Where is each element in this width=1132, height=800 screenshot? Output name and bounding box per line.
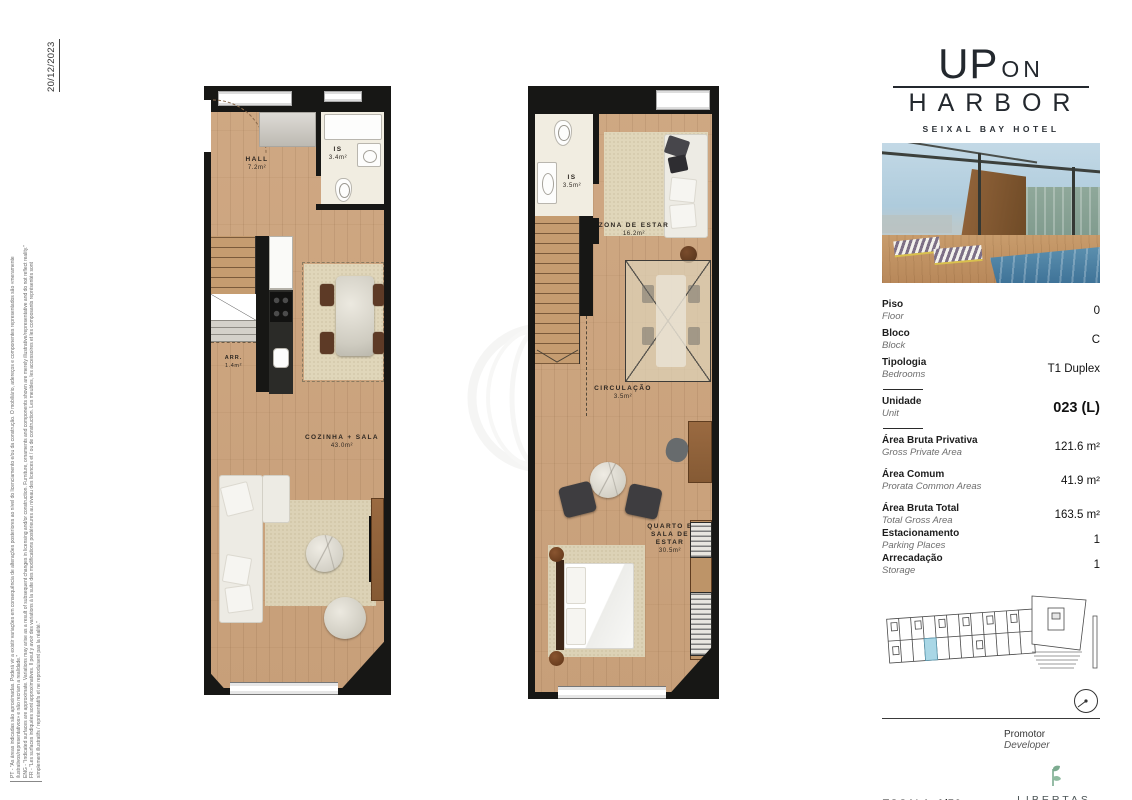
staircase [535, 216, 580, 364]
wall [580, 216, 593, 316]
brand-harbor: HARBOR [893, 86, 1089, 118]
value-gross-private: 121.6 m² [1055, 441, 1100, 453]
label-en: Floor [882, 311, 904, 322]
nightstand [549, 651, 564, 666]
armchair [624, 483, 663, 520]
room-label-hall: HALL 7.2m² [222, 156, 292, 171]
room-area: 43.0m² [296, 443, 388, 449]
value-parking: 1 [1094, 534, 1100, 546]
pouf [324, 597, 366, 639]
project-photo [882, 143, 1100, 283]
promoter-label-en: Developer [1004, 740, 1100, 751]
room-name: IS [318, 146, 358, 154]
promoter-label-pt: Promotor [1004, 729, 1100, 740]
room-area: 30.5m² [636, 548, 704, 554]
developer-name: LIBERTAS [1008, 794, 1100, 800]
floorplan-level1: IS 3.5m² ZONA DE ESTAR 16.2m² CIRCULAÇÃO… [528, 86, 719, 699]
ghost-chair [642, 327, 654, 345]
developer-logo: LIBERTAS GRUPO IMOBILIÁRIO [1008, 765, 1100, 800]
room-area: 3.5m² [554, 183, 590, 189]
dining-chair [320, 284, 334, 306]
room-label-arr: ARR. 1.4m² [211, 354, 256, 369]
label-en: Block [882, 340, 910, 351]
wall [384, 86, 391, 695]
sofa-chaise [262, 475, 290, 523]
label-pt: Arrecadação [882, 553, 943, 565]
wall [712, 86, 719, 699]
label-pt: Estacionamento [882, 528, 959, 540]
promoter-block: Promotor Developer [1004, 729, 1100, 751]
stair-arrow-icon [535, 348, 580, 366]
room-area: 16.2m² [596, 231, 672, 237]
nightstand [549, 547, 564, 562]
value-block: C [1092, 334, 1100, 346]
window [230, 682, 338, 695]
label-pt: Área Comum [882, 469, 981, 481]
photo-pergola-post [978, 153, 981, 245]
label-pt: Área Bruta Privativa [882, 435, 978, 447]
dining-chair [373, 284, 384, 306]
value-unit: 023 (L) [1053, 400, 1100, 416]
room-label-quarto: QUARTO E SALA DE ESTAR 30.5m² [636, 523, 704, 554]
brand-up: UP [938, 44, 998, 84]
room-name: COZINHA + SALA [296, 434, 388, 442]
room-label-is: IS 3.4m² [318, 146, 358, 161]
brand-subtitle: SEIXAL BAY HOTEL [882, 124, 1100, 134]
headboard [556, 560, 564, 650]
coffee-table [306, 535, 343, 572]
wall [204, 86, 211, 695]
wardrobe-hanging [690, 592, 712, 656]
washing-machine [357, 143, 381, 167]
room-name: HALL [222, 156, 292, 164]
ghost-chair [688, 327, 700, 345]
divider [883, 389, 923, 390]
label-pt: Área Bruta Total [882, 503, 959, 515]
detail-row-gross-total: Área Bruta Total Total Gross Area 163.5 … [882, 503, 1100, 526]
wall [316, 204, 384, 210]
value-floor: 0 [1094, 305, 1100, 317]
hall-closet [259, 112, 316, 147]
desk-chair [663, 436, 690, 465]
kitchen-cabinets [269, 236, 293, 290]
tv-sideboard [371, 498, 384, 601]
photo-horizon [882, 215, 952, 233]
detail-row-block: Bloco Block C [882, 328, 1100, 351]
stair-landing [211, 294, 256, 320]
value-gross-total: 163.5 m² [1055, 509, 1100, 521]
value-common: 41.9 m² [1061, 475, 1100, 487]
detail-row-gross-private: Área Bruta Privativa Gross Private Area … [882, 435, 1100, 458]
tv [369, 516, 371, 582]
brand-on: ON [1001, 54, 1044, 84]
ghost-dining-table [656, 275, 686, 367]
label-en: Prorata Common Areas [882, 481, 981, 492]
info-panel: UP ON HARBOR SEIXAL BAY HOTEL Piso Floor… [882, 38, 1100, 800]
wall [593, 114, 599, 184]
room-area: 3.4m² [318, 155, 358, 161]
label-en: Gross Private Area [882, 447, 978, 458]
detail-row-unit: Unidade Unit 023 (L) [882, 396, 1100, 419]
sheet-date: 20/12/2023 [46, 39, 60, 92]
compass-icon [1073, 688, 1099, 714]
stair-lower-steps [211, 320, 256, 342]
room-name: QUARTO E SALA DE ESTAR [636, 523, 704, 547]
detail-row-storage: Arrecadação Storage 1 [882, 553, 1100, 576]
sofa-cushion [222, 554, 252, 586]
room-area: 1.4m² [211, 363, 256, 369]
sofa-cushion [669, 203, 697, 229]
dining-table [336, 276, 374, 356]
label-en: Unit [882, 408, 921, 419]
dining-chair [373, 332, 384, 354]
plan-sheet: { "meta": { "date": "20/12/2023" }, "dis… [0, 0, 1132, 800]
angled-wall [336, 634, 391, 695]
label-en: Bedrooms [882, 369, 926, 380]
value-storage: 1 [1094, 559, 1100, 571]
detail-row-typology: Tipologia Bedrooms T1 Duplex [882, 357, 1100, 380]
divider [882, 718, 1100, 719]
round-table [590, 462, 626, 498]
room-area: 7.2m² [222, 165, 292, 171]
brand-logo: UP ON HARBOR SEIXAL BAY HOTEL [882, 38, 1100, 134]
divider [883, 428, 923, 429]
entrance-door-gap [204, 100, 211, 152]
scale-bar [1093, 616, 1097, 668]
legal-disclaimer: PT - "As áreas indicadas são aproximadas… [10, 76, 42, 782]
disclaimer-line: simplement illustratifs / représentatifs… [36, 76, 42, 778]
detail-row-parking: Estacionamento Parking Places 1 [882, 528, 1100, 551]
ghost-chair [688, 285, 700, 303]
room-name: ZONA DE ESTAR [596, 222, 672, 230]
label-en: Storage [882, 565, 943, 576]
kitchen-sink [273, 348, 289, 368]
room-name: IS [554, 174, 590, 182]
photo-wood-structure [960, 169, 1026, 245]
pillow [566, 567, 586, 604]
ghost-chair [642, 285, 654, 303]
window [656, 90, 710, 110]
double-height-void [625, 260, 711, 382]
room-name: ARR. [211, 354, 256, 362]
label-pt: Tipologia [882, 357, 926, 369]
floorplan-level0: IS 3.4m² HALL 7.2m² ARR. 1.4m² COZINHA +… [204, 86, 391, 695]
desk [688, 421, 712, 483]
sofa-cushion [224, 584, 253, 613]
window [558, 686, 666, 699]
room-area: 3.5m² [583, 394, 663, 400]
room-label-is2: IS 3.5m² [554, 174, 590, 189]
wall [256, 236, 269, 392]
value-typology: T1 Duplex [1048, 363, 1100, 375]
window [324, 91, 362, 102]
armchair [558, 480, 598, 518]
cooktop [270, 292, 292, 322]
pillow [566, 608, 586, 645]
label-pt: Bloco [882, 328, 910, 340]
libertas-leaf-icon [1046, 765, 1062, 787]
wall [528, 86, 535, 699]
room-label-living: COZINHA + SALA 43.0m² [296, 434, 388, 449]
bathroom-vanity [324, 114, 382, 140]
label-en: Total Gross Area [882, 515, 959, 526]
site-key-plan [882, 588, 1100, 700]
label-pt: Unidade [882, 396, 921, 408]
sofa-cushion [669, 177, 697, 204]
wall [316, 112, 321, 176]
room-label-circulacao: CIRCULAÇÃO 3.5m² [583, 385, 663, 400]
stair-direction-dashed [586, 316, 587, 416]
photo-pergola-post [1072, 167, 1075, 245]
detail-row-floor: Piso Floor 0 [882, 299, 1100, 322]
room-label-zona: ZONA DE ESTAR 16.2m² [596, 222, 672, 237]
label-en: Parking Places [882, 540, 959, 551]
label-pt: Piso [882, 299, 904, 311]
detail-row-common: Área Comum Prorata Common Areas 41.9 m² [882, 469, 1100, 492]
highlighted-unit [924, 638, 938, 661]
dining-chair [320, 332, 334, 354]
room-name: CIRCULAÇÃO [583, 385, 663, 393]
